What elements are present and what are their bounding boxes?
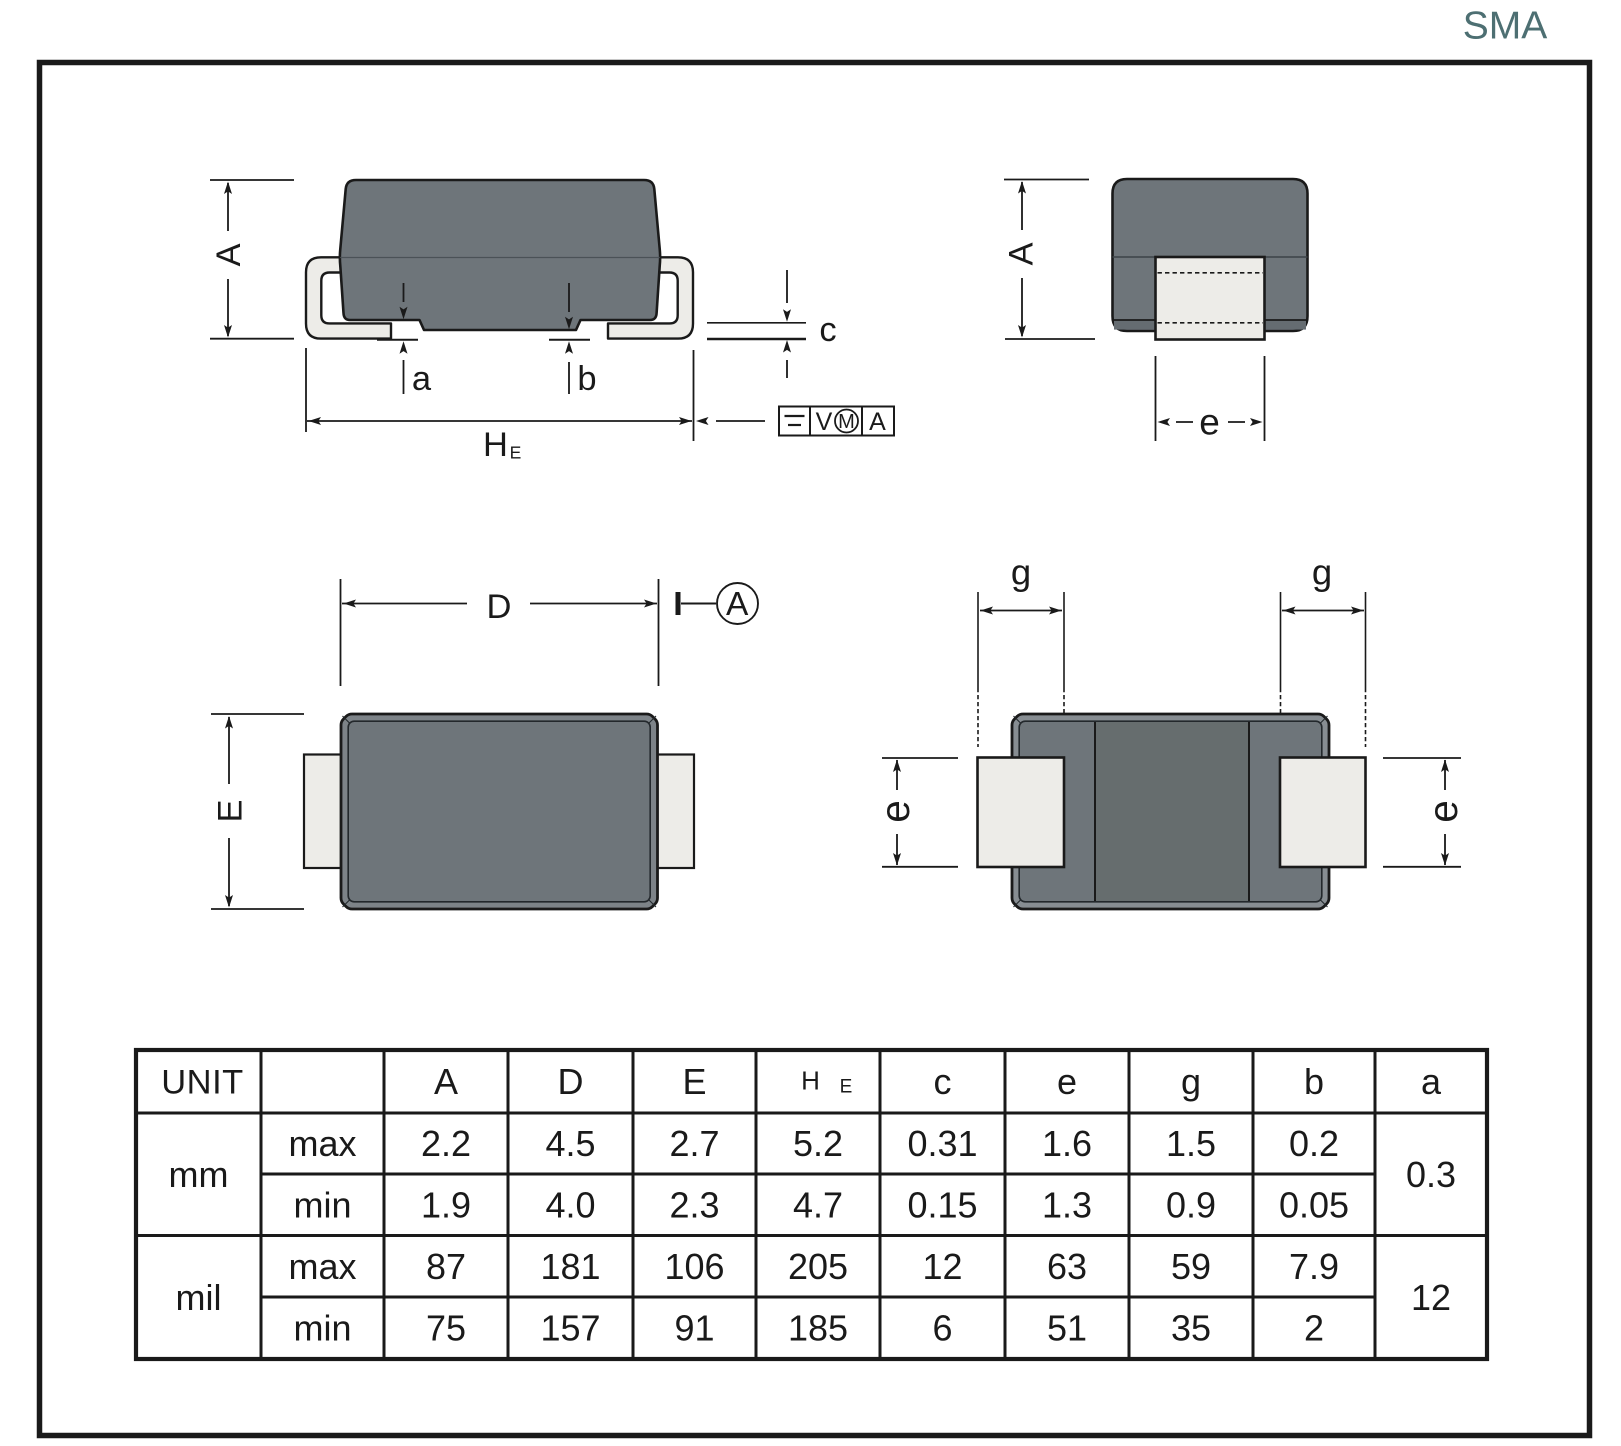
- svg-text:E: E: [682, 1061, 706, 1102]
- svg-text:2: 2: [1304, 1308, 1324, 1349]
- svg-text:0.31: 0.31: [907, 1123, 977, 1164]
- svg-text:6: 6: [932, 1308, 952, 1349]
- svg-text:V: V: [816, 408, 833, 436]
- svg-text:H: H: [801, 1066, 820, 1096]
- svg-text:A: A: [869, 408, 886, 436]
- svg-text:91: 91: [674, 1308, 714, 1349]
- svg-text:e: e: [872, 800, 918, 823]
- svg-text:106: 106: [664, 1246, 724, 1287]
- svg-text:7.9: 7.9: [1289, 1246, 1339, 1287]
- svg-text:c: c: [934, 1061, 952, 1102]
- svg-text:mil: mil: [176, 1277, 222, 1318]
- svg-text:g: g: [1011, 552, 1031, 593]
- svg-text:0.05: 0.05: [1279, 1184, 1349, 1225]
- svg-text:4.0: 4.0: [545, 1184, 595, 1225]
- svg-text:g: g: [1181, 1061, 1201, 1102]
- svg-text:4.5: 4.5: [545, 1123, 595, 1164]
- svg-text:0.2: 0.2: [1289, 1123, 1339, 1164]
- svg-text:35: 35: [1171, 1308, 1211, 1349]
- svg-text:1.3: 1.3: [1042, 1184, 1092, 1225]
- svg-text:min: min: [293, 1184, 351, 1225]
- svg-text:2.2: 2.2: [421, 1123, 471, 1164]
- svg-text:157: 157: [540, 1308, 600, 1349]
- svg-text:E: E: [840, 1077, 853, 1098]
- svg-text:E: E: [510, 443, 522, 463]
- svg-text:59: 59: [1171, 1246, 1211, 1287]
- svg-text:SMA: SMA: [1463, 5, 1548, 48]
- svg-text:max: max: [288, 1246, 356, 1287]
- svg-text:max: max: [288, 1123, 356, 1164]
- svg-text:min: min: [293, 1308, 351, 1349]
- svg-text:e: e: [1420, 800, 1466, 823]
- svg-text:c: c: [819, 311, 836, 349]
- svg-text:a: a: [412, 360, 432, 398]
- svg-text:2.3: 2.3: [669, 1184, 719, 1225]
- svg-text:D: D: [487, 588, 512, 626]
- svg-text:g: g: [1312, 552, 1332, 593]
- svg-text:51: 51: [1047, 1308, 1087, 1349]
- svg-text:A: A: [434, 1061, 458, 1102]
- svg-text:M: M: [838, 411, 855, 433]
- svg-text:2.7: 2.7: [669, 1123, 719, 1164]
- svg-text:A: A: [726, 586, 749, 623]
- svg-text:A: A: [210, 243, 248, 266]
- svg-text:1.6: 1.6: [1042, 1123, 1092, 1164]
- svg-text:181: 181: [540, 1246, 600, 1287]
- svg-text:e: e: [1057, 1061, 1077, 1102]
- svg-text:A: A: [1003, 242, 1041, 265]
- svg-text:D: D: [558, 1061, 584, 1102]
- svg-text:5.2: 5.2: [793, 1123, 843, 1164]
- svg-text:87: 87: [426, 1246, 466, 1287]
- svg-text:185: 185: [788, 1308, 848, 1349]
- svg-text:1.5: 1.5: [1166, 1123, 1216, 1164]
- svg-text:75: 75: [426, 1308, 466, 1349]
- svg-text:63: 63: [1047, 1246, 1087, 1287]
- svg-text:H: H: [483, 426, 508, 464]
- svg-text:b: b: [1304, 1061, 1324, 1102]
- svg-text:0.15: 0.15: [907, 1184, 977, 1225]
- svg-text:E: E: [212, 799, 250, 822]
- svg-text:0.9: 0.9: [1166, 1184, 1216, 1225]
- svg-text:4.7: 4.7: [793, 1184, 843, 1225]
- svg-text:0.3: 0.3: [1406, 1154, 1456, 1195]
- svg-text:12: 12: [1411, 1277, 1451, 1318]
- svg-text:a: a: [1421, 1061, 1442, 1102]
- svg-text:12: 12: [922, 1246, 962, 1287]
- svg-text:e: e: [1199, 402, 1220, 443]
- svg-text:1.9: 1.9: [421, 1184, 471, 1225]
- svg-text:UNIT: UNIT: [161, 1064, 244, 1102]
- svg-text:b: b: [577, 360, 596, 398]
- svg-text:mm: mm: [169, 1154, 229, 1195]
- svg-text:205: 205: [788, 1246, 848, 1287]
